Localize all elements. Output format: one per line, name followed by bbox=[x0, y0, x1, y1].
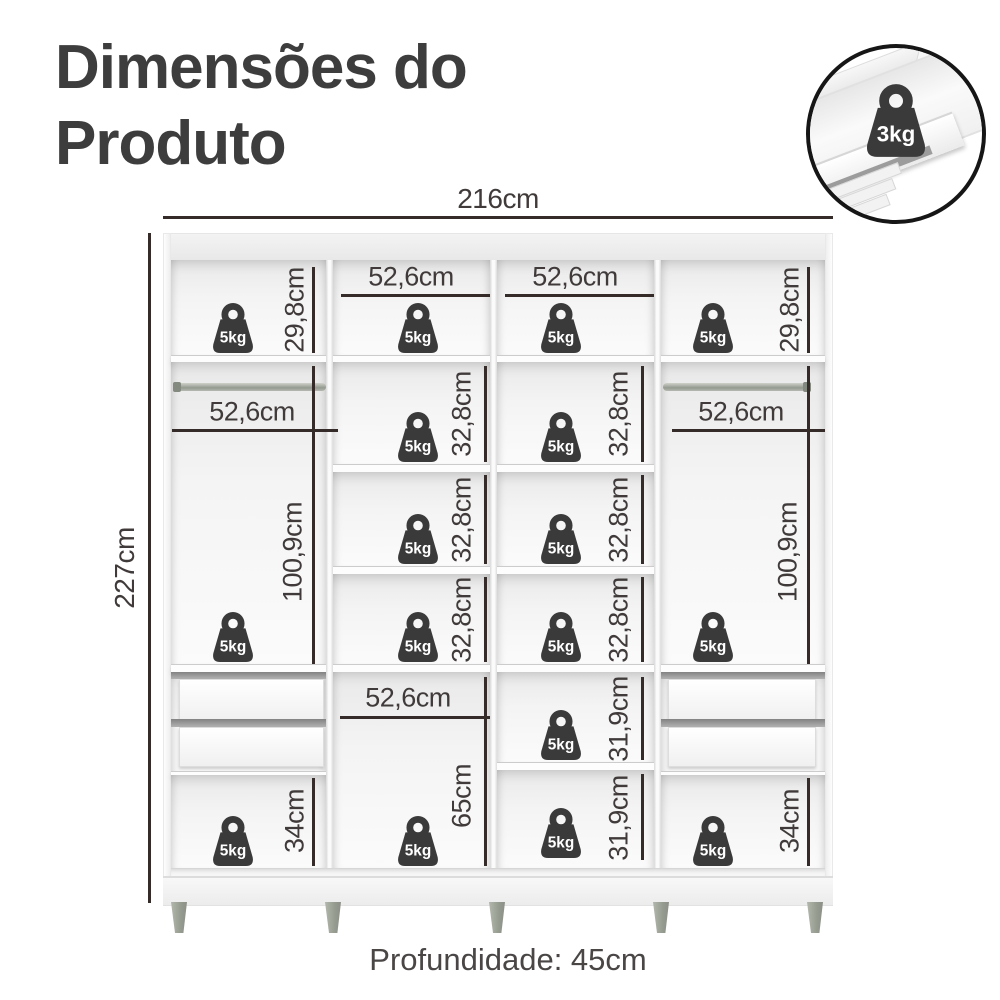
leg-5 bbox=[805, 902, 825, 933]
page-title-line1: Dimensões do bbox=[55, 30, 467, 106]
measurement-c2-shelf1: 32,8cm bbox=[447, 371, 478, 457]
weight-capacity-icon: 5kg bbox=[532, 514, 590, 564]
leg-1 bbox=[169, 902, 189, 933]
dimension-line-c2-shelf2 bbox=[484, 475, 487, 564]
dimension-line-c3-lower1 bbox=[641, 677, 644, 760]
divider-panel-2 bbox=[490, 260, 497, 876]
svg-text:5kg: 5kg bbox=[220, 638, 247, 655]
wardrobe-plinth bbox=[163, 876, 833, 906]
dimension-line-c2-shelf1 bbox=[484, 366, 487, 462]
svg-text:5kg: 5kg bbox=[220, 842, 247, 859]
weight-capacity-icon: 5kg bbox=[684, 816, 742, 866]
weight-capacity-icon: 5kg bbox=[389, 612, 447, 662]
measurement-c3-shelf2: 32,8cm bbox=[604, 477, 635, 563]
height-dimension-line bbox=[148, 233, 151, 903]
weight-capacity-icon: 5kg bbox=[684, 612, 742, 662]
depth-label: Profundidade: 45cm bbox=[369, 942, 646, 978]
dimension-line-bottom-right bbox=[807, 778, 810, 866]
width-dimension-line bbox=[163, 216, 833, 219]
dimension-line-c3-lower2 bbox=[641, 774, 644, 860]
drawer-inset-circle: 3kg bbox=[806, 44, 986, 224]
svg-text:5kg: 5kg bbox=[548, 329, 575, 346]
svg-text:5kg: 5kg bbox=[700, 638, 727, 655]
leg-2 bbox=[323, 902, 343, 933]
measurement-top-c3: 52,6cm bbox=[532, 262, 618, 293]
measurement-bottom-right: 34cm bbox=[775, 789, 806, 853]
measurement-top-left: 29,8cm bbox=[280, 267, 311, 353]
leg-4 bbox=[651, 902, 671, 933]
drawer-weight-capacity-icon: 3kg bbox=[854, 84, 938, 157]
measurement-c3-lower2: 31,9cm bbox=[604, 775, 635, 861]
dimension-line-top-c2 bbox=[341, 294, 490, 297]
page-title: Dimensões do Produto bbox=[55, 30, 467, 182]
measurement-hang-left-width: 52,6cm bbox=[209, 397, 295, 428]
weight-capacity-icon: 5kg bbox=[532, 412, 590, 462]
svg-text:5kg: 5kg bbox=[405, 842, 432, 859]
dimension-line-bottom-left bbox=[312, 778, 315, 866]
svg-text:5kg: 5kg bbox=[700, 329, 727, 346]
drawer-front-right-2 bbox=[668, 727, 816, 767]
dimension-line-hang-right-height bbox=[807, 366, 810, 664]
measurement-c3-shelf3: 32,8cm bbox=[604, 577, 635, 663]
weight-capacity-icon: 5kg bbox=[532, 710, 590, 760]
weight-capacity-icon: 5kg bbox=[204, 612, 262, 662]
svg-text:5kg: 5kg bbox=[548, 438, 575, 455]
drawer-slide-left-2 bbox=[171, 719, 326, 727]
measurement-c2-lower-height: 65cm bbox=[447, 764, 478, 828]
width-dimension-label: 216cm bbox=[457, 183, 539, 215]
weight-capacity-icon: 5kg bbox=[684, 303, 742, 353]
measurement-hang-left-height: 100,9cm bbox=[278, 502, 309, 602]
dimension-line-c2-lower-height bbox=[484, 677, 487, 866]
divider-panel-3 bbox=[654, 260, 661, 876]
drawer-slide-right-2 bbox=[661, 719, 825, 727]
dimension-line-top-left bbox=[312, 267, 315, 353]
weight-capacity-icon: 5kg bbox=[204, 816, 262, 866]
weight-capacity-icon: 5kg bbox=[389, 303, 447, 353]
svg-text:5kg: 5kg bbox=[548, 736, 575, 753]
measurement-c3-shelf1: 32,8cm bbox=[604, 371, 635, 457]
weight-capacity-icon: 5kg bbox=[389, 412, 447, 462]
measurement-c3-lower1: 31,9cm bbox=[604, 676, 635, 762]
svg-text:5kg: 5kg bbox=[405, 638, 432, 655]
measurement-c2-shelf3: 32,8cm bbox=[447, 577, 478, 663]
weight-capacity-icon: 5kg bbox=[204, 303, 262, 353]
drawer-slide-right-1 bbox=[661, 672, 825, 679]
dimension-line-c3-shelf3 bbox=[641, 577, 644, 662]
dimension-line-c2-lower-width bbox=[340, 716, 490, 719]
drawer-front-left-1 bbox=[179, 679, 324, 721]
dimension-line-top-right bbox=[807, 267, 810, 353]
dimension-line-hang-right-width bbox=[672, 429, 825, 432]
dimension-line-hang-left-height bbox=[312, 366, 315, 664]
svg-text:5kg: 5kg bbox=[220, 329, 247, 346]
weight-capacity-icon: 5kg bbox=[532, 808, 590, 858]
page-title-line2: Produto bbox=[55, 106, 467, 182]
measurement-bottom-left: 34cm bbox=[280, 789, 311, 853]
svg-text:5kg: 5kg bbox=[405, 540, 432, 557]
dimension-line-c3-shelf1 bbox=[641, 366, 644, 462]
measurement-top-c2: 52,6cm bbox=[368, 262, 454, 293]
height-dimension-label: 227cm bbox=[109, 527, 141, 609]
wardrobe-top-panel bbox=[163, 233, 833, 262]
svg-text:5kg: 5kg bbox=[405, 438, 432, 455]
svg-text:5kg: 5kg bbox=[548, 638, 575, 655]
drawer-front-left-2 bbox=[179, 727, 324, 767]
divider-panel-1 bbox=[326, 260, 333, 876]
dimension-line-c3-shelf2 bbox=[641, 475, 644, 564]
wardrobe-right-wall bbox=[825, 233, 833, 903]
weight-capacity-icon: 5kg bbox=[389, 816, 447, 866]
leg-3 bbox=[487, 902, 507, 933]
svg-text:3kg: 3kg bbox=[877, 122, 916, 147]
wardrobe-left-wall bbox=[163, 233, 171, 903]
drawer-slide-left-1 bbox=[171, 672, 326, 679]
svg-text:5kg: 5kg bbox=[548, 540, 575, 557]
product-dimensions-diagram: Dimensões do Produto 3kg 216cm 227cm bbox=[0, 0, 1000, 1000]
weight-capacity-icon: 5kg bbox=[389, 514, 447, 564]
measurement-top-right: 29,8cm bbox=[775, 267, 806, 353]
dimension-line-c2-shelf3 bbox=[484, 577, 487, 662]
hanging-rod-left bbox=[174, 383, 326, 391]
drawer-front-right-1 bbox=[668, 679, 816, 721]
dimension-line-top-c3 bbox=[505, 294, 654, 297]
svg-text:5kg: 5kg bbox=[700, 842, 727, 859]
weight-capacity-icon: 5kg bbox=[532, 303, 590, 353]
hanging-rod-right bbox=[663, 383, 810, 391]
measurement-c2-lower-width: 52,6cm bbox=[365, 683, 451, 714]
weight-capacity-icon: 5kg bbox=[532, 612, 590, 662]
svg-text:5kg: 5kg bbox=[548, 834, 575, 851]
measurement-hang-right-height: 100,9cm bbox=[773, 502, 804, 602]
svg-text:5kg: 5kg bbox=[405, 329, 432, 346]
measurement-c2-shelf2: 32,8cm bbox=[447, 477, 478, 563]
measurement-hang-right-width: 52,6cm bbox=[698, 397, 784, 428]
